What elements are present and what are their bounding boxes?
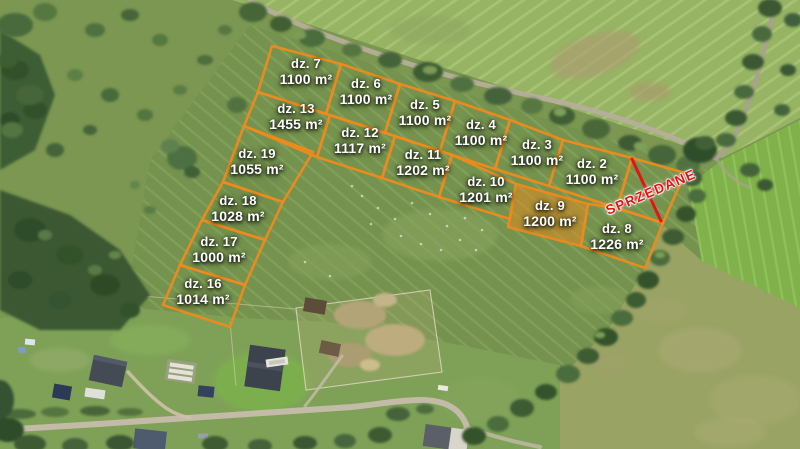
plot-boundary-dz-8 — [581, 204, 663, 268]
aerial-photo-stage: dz. 71100 m²dz. 61100 m²dz. 51100 m²dz. … — [0, 0, 800, 449]
plot-boundary-dz-18 — [202, 182, 283, 240]
plot-overlay — [0, 0, 800, 449]
plot-boundary-dz-17 — [180, 220, 265, 285]
plot-boundary-dz-9 — [508, 184, 588, 246]
plot-boundary-dz-13 — [244, 92, 330, 157]
plot-boundary-dz-16 — [163, 265, 245, 327]
plot-boundary-dz-5 — [385, 84, 455, 151]
sold-cross-line — [632, 159, 661, 221]
plot-boundary-dz-12 — [317, 115, 395, 178]
